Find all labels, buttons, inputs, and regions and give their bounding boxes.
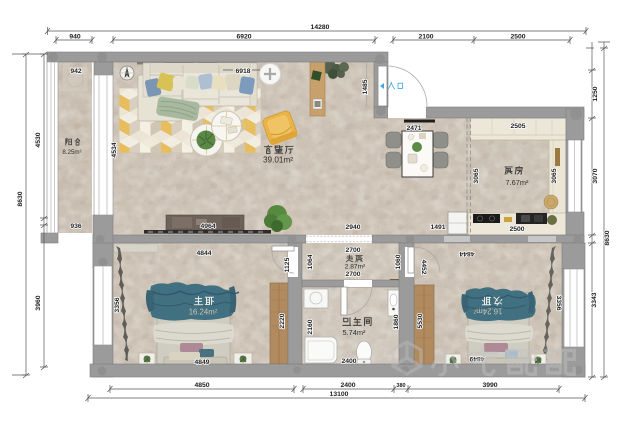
svg-text:2400: 2400: [341, 358, 356, 365]
svg-text:5.74m²: 5.74m²: [342, 328, 366, 337]
svg-text:3960: 3960: [35, 295, 42, 310]
svg-text:3356: 3356: [555, 295, 562, 310]
svg-text:942: 942: [70, 68, 82, 75]
svg-text:4964: 4964: [200, 223, 215, 230]
svg-text:5530: 5530: [417, 313, 424, 328]
svg-text:4534: 4534: [111, 142, 118, 157]
svg-text:16.24m²: 16.24m²: [473, 307, 502, 316]
svg-text:13100: 13100: [330, 391, 349, 398]
svg-text:2.87m²: 2.87m²: [345, 264, 366, 271]
svg-text:4452: 4452: [420, 259, 427, 274]
svg-text:14280: 14280: [311, 24, 330, 31]
svg-text:3990: 3990: [482, 382, 497, 389]
svg-text:8.25m²: 8.25m²: [62, 149, 81, 156]
svg-text:1060: 1060: [395, 254, 402, 269]
svg-text:2940: 2940: [345, 224, 360, 231]
svg-text:7.67m²: 7.67m²: [505, 178, 529, 187]
svg-text:3356: 3356: [114, 297, 121, 312]
svg-text:2500: 2500: [510, 34, 525, 41]
svg-text:1860: 1860: [393, 314, 400, 329]
svg-text:1485: 1485: [362, 79, 369, 94]
svg-text:936: 936: [70, 223, 82, 230]
svg-text:2100: 2100: [418, 34, 433, 41]
svg-text:2700: 2700: [345, 271, 360, 278]
svg-text:6920: 6920: [236, 34, 251, 41]
svg-text:3343: 3343: [591, 292, 598, 307]
svg-text:6918: 6918: [235, 68, 250, 75]
svg-text:1250: 1250: [592, 86, 599, 101]
svg-text:380: 380: [396, 383, 405, 389]
svg-text:8630: 8630: [17, 191, 24, 206]
svg-text:8630: 8630: [604, 230, 611, 245]
svg-text:4844: 4844: [459, 250, 474, 257]
svg-text:2700: 2700: [345, 247, 360, 254]
svg-text:39.01m²: 39.01m²: [263, 156, 293, 165]
svg-text:2500: 2500: [509, 226, 524, 233]
svg-text:4849: 4849: [194, 359, 209, 366]
svg-text:4850: 4850: [194, 382, 209, 389]
svg-text:4844: 4844: [196, 250, 211, 257]
svg-text:3070: 3070: [592, 168, 599, 183]
svg-text:4530: 4530: [35, 132, 42, 147]
svg-text:1125: 1125: [284, 257, 291, 272]
svg-text:2220: 2220: [279, 313, 286, 328]
svg-text:2400: 2400: [340, 382, 355, 389]
svg-text:2160: 2160: [307, 319, 314, 334]
svg-text:3065: 3065: [551, 168, 558, 183]
svg-text:1491: 1491: [430, 224, 445, 231]
svg-text:3065: 3065: [473, 168, 480, 183]
svg-text:2505: 2505: [510, 123, 525, 130]
svg-text:2471: 2471: [406, 125, 421, 132]
svg-text:940: 940: [69, 34, 81, 41]
svg-text:1064: 1064: [307, 254, 314, 269]
svg-text:16.24m²: 16.24m²: [189, 308, 218, 317]
